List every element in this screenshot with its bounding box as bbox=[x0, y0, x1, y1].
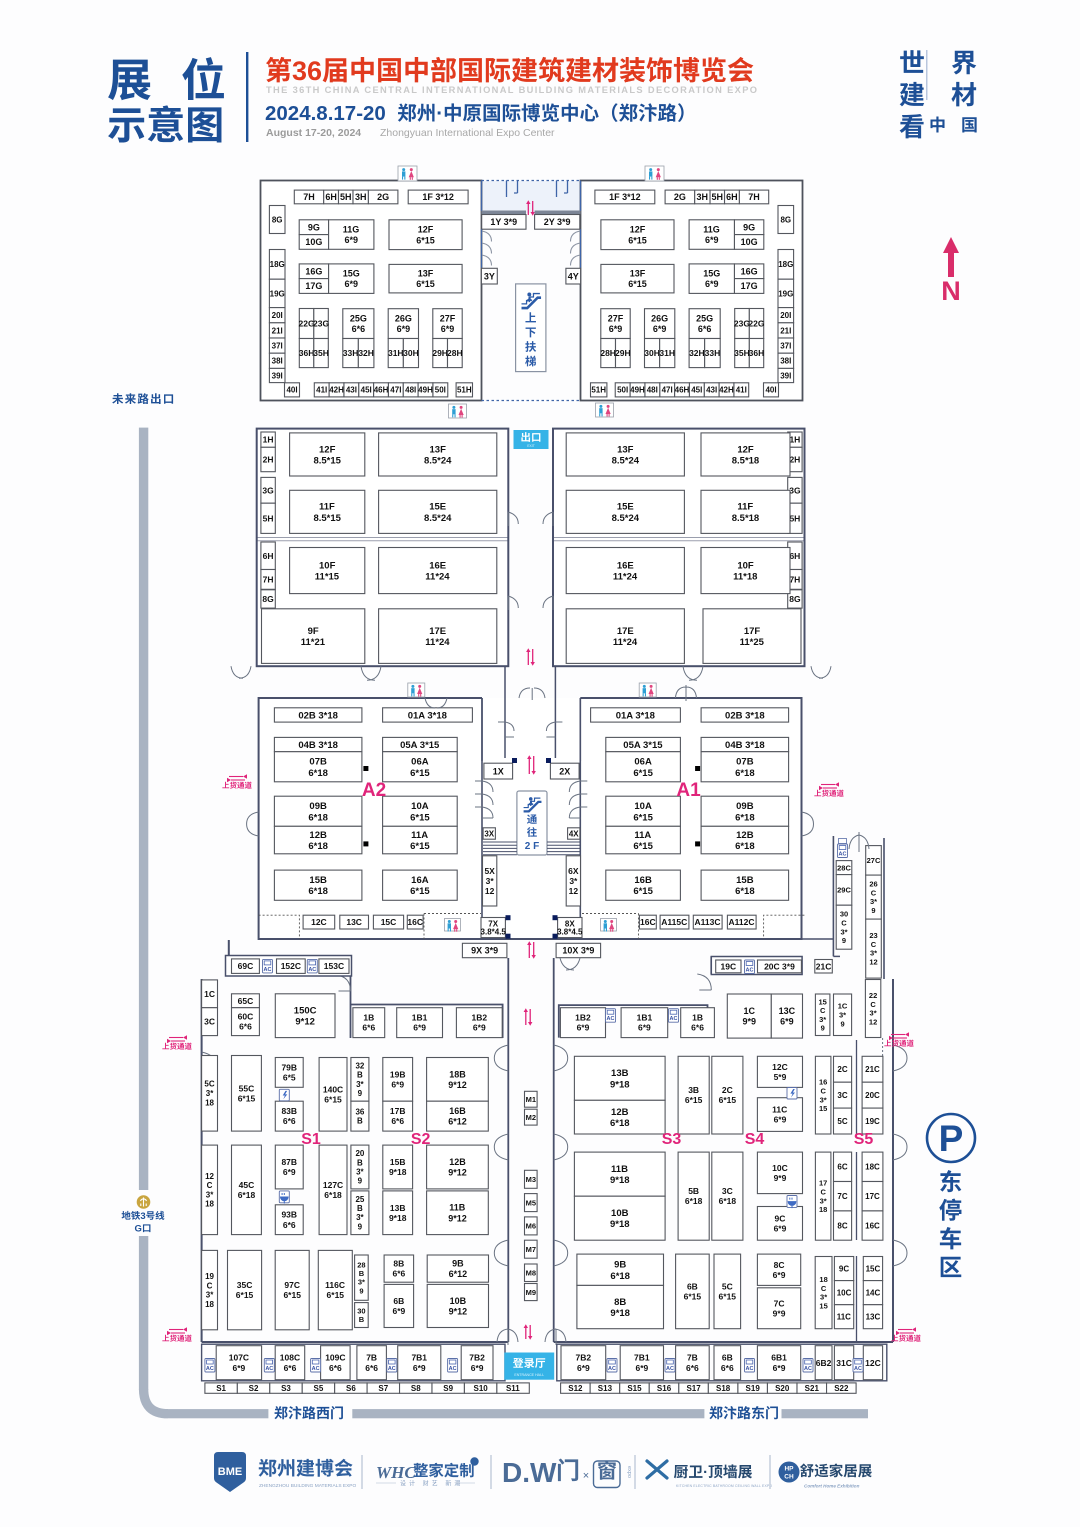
svg-text:9*18: 9*18 bbox=[610, 1219, 630, 1230]
svg-text:17E: 17E bbox=[617, 626, 634, 637]
svg-text:43I: 43I bbox=[706, 386, 717, 395]
svg-text:11F: 11F bbox=[737, 502, 753, 513]
svg-text:8B: 8B bbox=[393, 1259, 404, 1269]
svg-text:9B: 9B bbox=[614, 1260, 626, 1271]
svg-text:16A: 16A bbox=[411, 875, 429, 886]
svg-text:9*9: 9*9 bbox=[774, 1173, 787, 1183]
svg-text:13F: 13F bbox=[630, 269, 646, 279]
svg-text:AC: AC bbox=[264, 967, 272, 973]
svg-text:50I: 50I bbox=[435, 386, 446, 395]
svg-text:3.8*4.5: 3.8*4.5 bbox=[481, 927, 507, 936]
svg-text:6*18: 6*18 bbox=[308, 812, 328, 823]
svg-text:15E: 15E bbox=[429, 502, 446, 513]
svg-text:A1: A1 bbox=[676, 780, 701, 801]
svg-text:28H: 28H bbox=[600, 348, 616, 358]
svg-text:6*12: 6*12 bbox=[448, 1117, 467, 1127]
svg-text:36H: 36H bbox=[299, 348, 315, 358]
svg-text:C: C bbox=[841, 919, 847, 928]
svg-text:7B1: 7B1 bbox=[411, 1353, 427, 1363]
svg-text:20I: 20I bbox=[780, 311, 791, 320]
svg-text:10X 3*9: 10X 3*9 bbox=[562, 946, 594, 956]
svg-text:29H: 29H bbox=[432, 348, 448, 358]
svg-text:6*9: 6*9 bbox=[413, 1023, 426, 1033]
svg-text:19: 19 bbox=[205, 1272, 214, 1281]
svg-text:D.W: D.W bbox=[502, 1457, 557, 1488]
svg-text:15C: 15C bbox=[866, 1264, 881, 1273]
svg-text:S2: S2 bbox=[411, 1131, 431, 1148]
svg-text:6*15: 6*15 bbox=[324, 1094, 342, 1104]
svg-text:2 F: 2 F bbox=[525, 841, 539, 852]
svg-text:6*9: 6*9 bbox=[344, 235, 358, 245]
svg-text:6*18: 6*18 bbox=[610, 1271, 630, 1282]
svg-text:G: G bbox=[135, 1224, 142, 1235]
svg-text:3*: 3* bbox=[206, 1089, 214, 1098]
svg-text:1F 3*12: 1F 3*12 bbox=[422, 192, 454, 202]
svg-text:13F: 13F bbox=[418, 269, 434, 279]
svg-text:2024.8.17-20: 2024.8.17-20 bbox=[265, 102, 386, 125]
svg-text:12: 12 bbox=[869, 1017, 877, 1026]
svg-text:S1: S1 bbox=[301, 1131, 321, 1148]
svg-text:17C: 17C bbox=[865, 1192, 880, 1201]
svg-text:9G: 9G bbox=[743, 222, 755, 232]
svg-text:13B: 13B bbox=[390, 1203, 406, 1213]
svg-text:6*15: 6*15 bbox=[628, 235, 647, 245]
svg-text:11A: 11A bbox=[411, 830, 428, 841]
svg-text:6*6: 6*6 bbox=[698, 324, 712, 334]
svg-text:9*12: 9*12 bbox=[448, 1080, 467, 1090]
svg-text:35H: 35H bbox=[734, 348, 750, 358]
svg-text:6B: 6B bbox=[722, 1353, 733, 1363]
svg-text:1B: 1B bbox=[692, 1013, 703, 1023]
svg-text:1C: 1C bbox=[204, 989, 215, 999]
svg-text:9*9: 9*9 bbox=[743, 1017, 757, 1027]
svg-text:5H: 5H bbox=[711, 192, 723, 202]
svg-text:36: 36 bbox=[292, 56, 322, 86]
svg-text:C: C bbox=[821, 1284, 827, 1293]
svg-text:6*18: 6*18 bbox=[610, 1118, 630, 1129]
svg-text:21C: 21C bbox=[816, 961, 832, 971]
svg-text:26: 26 bbox=[869, 880, 877, 889]
svg-text:16E: 16E bbox=[429, 560, 446, 571]
svg-text:40I: 40I bbox=[286, 386, 297, 395]
svg-text:7B: 7B bbox=[687, 1353, 698, 1363]
svg-text:25G: 25G bbox=[696, 314, 713, 324]
svg-text:18: 18 bbox=[205, 1300, 214, 1309]
svg-text:6*15: 6*15 bbox=[633, 841, 653, 852]
svg-text:9: 9 bbox=[358, 1222, 363, 1231]
svg-text:45I: 45I bbox=[361, 386, 372, 395]
svg-text:S5: S5 bbox=[854, 1131, 874, 1148]
svg-text:10C: 10C bbox=[772, 1163, 788, 1173]
svg-text:6*9: 6*9 bbox=[609, 324, 623, 334]
svg-text:3*: 3* bbox=[569, 876, 578, 886]
svg-text:9C: 9C bbox=[775, 1213, 786, 1223]
svg-text:8.5*24: 8.5*24 bbox=[424, 455, 452, 466]
svg-text:8.5*24: 8.5*24 bbox=[424, 513, 452, 524]
svg-text:1B: 1B bbox=[363, 1013, 374, 1023]
svg-text:49H: 49H bbox=[418, 386, 433, 395]
svg-text:36H: 36H bbox=[749, 348, 765, 358]
svg-text:7H: 7H bbox=[263, 574, 274, 584]
svg-text:15C: 15C bbox=[381, 917, 397, 927]
svg-text:21I: 21I bbox=[780, 326, 791, 335]
svg-text:3*: 3* bbox=[839, 1010, 846, 1019]
svg-text:33H: 33H bbox=[705, 348, 721, 358]
svg-text:6H: 6H bbox=[325, 192, 337, 202]
svg-text:40I: 40I bbox=[765, 386, 776, 395]
svg-text:15B: 15B bbox=[390, 1157, 406, 1167]
svg-text:4Y: 4Y bbox=[568, 271, 579, 281]
svg-text:07B: 07B bbox=[309, 757, 327, 768]
svg-text:C: C bbox=[820, 1187, 826, 1196]
svg-text:11*25: 11*25 bbox=[740, 637, 765, 648]
svg-text:2Y 3*9: 2Y 3*9 bbox=[544, 217, 571, 227]
svg-text:AC: AC bbox=[854, 1366, 862, 1372]
svg-text:07B: 07B bbox=[736, 757, 754, 768]
svg-text:05A 3*15: 05A 3*15 bbox=[400, 740, 440, 751]
svg-text:HP: HP bbox=[784, 1466, 794, 1473]
svg-text:30: 30 bbox=[840, 910, 848, 919]
svg-text:6*5: 6*5 bbox=[283, 1072, 296, 1082]
svg-text:6*15: 6*15 bbox=[633, 812, 653, 823]
svg-text:12B: 12B bbox=[309, 830, 327, 841]
svg-text:36: 36 bbox=[355, 1107, 364, 1116]
svg-text:12F: 12F bbox=[418, 225, 434, 235]
svg-text:8.5*15: 8.5*15 bbox=[313, 513, 341, 524]
svg-text:S3: S3 bbox=[281, 1384, 291, 1393]
svg-text:7B: 7B bbox=[366, 1353, 377, 1363]
svg-text:3*: 3* bbox=[870, 949, 877, 958]
svg-text:6*9: 6*9 bbox=[705, 279, 719, 289]
svg-text:6B: 6B bbox=[687, 1281, 698, 1291]
svg-text:32H: 32H bbox=[689, 348, 705, 358]
svg-text:127C: 127C bbox=[323, 1180, 343, 1190]
svg-text:6*15: 6*15 bbox=[410, 768, 430, 779]
svg-text:6*9: 6*9 bbox=[774, 1223, 787, 1233]
svg-text:60C: 60C bbox=[238, 1012, 254, 1022]
svg-text:S21: S21 bbox=[805, 1384, 820, 1393]
svg-text:19G: 19G bbox=[270, 289, 285, 298]
svg-text:42H: 42H bbox=[719, 386, 734, 395]
svg-text:设计 财艺 新潮: 设计 财艺 新潮 bbox=[400, 1480, 463, 1488]
svg-text:S16: S16 bbox=[657, 1384, 672, 1393]
svg-text:16C: 16C bbox=[640, 917, 656, 927]
svg-text:12F: 12F bbox=[630, 225, 646, 235]
svg-text:6*9: 6*9 bbox=[705, 235, 719, 245]
svg-text:6*6: 6*6 bbox=[365, 1363, 378, 1373]
svg-text:50I: 50I bbox=[617, 386, 628, 395]
svg-text:18C: 18C bbox=[865, 1163, 880, 1172]
svg-text:2X: 2X bbox=[559, 766, 570, 776]
svg-text:11F: 11F bbox=[319, 502, 335, 513]
svg-text:6*9: 6*9 bbox=[391, 1079, 404, 1089]
svg-text:41I: 41I bbox=[736, 386, 747, 395]
svg-text:12B: 12B bbox=[736, 830, 754, 841]
svg-text:19C: 19C bbox=[721, 961, 737, 971]
svg-text:16C: 16C bbox=[865, 1221, 880, 1230]
svg-text:21I: 21I bbox=[272, 326, 283, 335]
svg-text:9: 9 bbox=[821, 1024, 825, 1033]
svg-text:11*21: 11*21 bbox=[301, 637, 326, 648]
svg-text:S19: S19 bbox=[746, 1384, 761, 1393]
svg-text:11*24: 11*24 bbox=[425, 572, 450, 583]
svg-text:109C: 109C bbox=[325, 1353, 345, 1363]
svg-text:6*9: 6*9 bbox=[780, 1017, 794, 1027]
svg-text:6B1: 6B1 bbox=[771, 1353, 787, 1363]
svg-text:AC: AC bbox=[308, 967, 316, 973]
svg-text:3B: 3B bbox=[688, 1085, 699, 1095]
svg-text:6B: 6B bbox=[393, 1296, 404, 1306]
svg-text:6*15: 6*15 bbox=[719, 1291, 737, 1301]
svg-text:140C: 140C bbox=[323, 1084, 343, 1094]
svg-text:S20: S20 bbox=[775, 1384, 790, 1393]
svg-text:4X: 4X bbox=[569, 829, 579, 838]
svg-text:1B1: 1B1 bbox=[637, 1013, 653, 1023]
svg-text:6*15: 6*15 bbox=[719, 1095, 737, 1105]
svg-text:9*12: 9*12 bbox=[449, 1307, 468, 1317]
svg-text:16E: 16E bbox=[617, 560, 634, 571]
svg-text:18: 18 bbox=[819, 1275, 827, 1284]
svg-text:15G: 15G bbox=[703, 269, 720, 279]
svg-text:32H: 32H bbox=[358, 348, 374, 358]
svg-text:3*: 3* bbox=[206, 1291, 214, 1300]
svg-text:14C: 14C bbox=[866, 1289, 881, 1298]
svg-text:20C 3*9: 20C 3*9 bbox=[764, 961, 795, 971]
svg-text:47I: 47I bbox=[662, 386, 673, 395]
svg-text:A115C: A115C bbox=[661, 917, 687, 927]
svg-text:11A: 11A bbox=[634, 830, 651, 841]
svg-text:7C: 7C bbox=[837, 1192, 847, 1201]
svg-text:69C: 69C bbox=[238, 961, 254, 971]
svg-text:16G: 16G bbox=[305, 266, 322, 276]
svg-text:7C: 7C bbox=[774, 1298, 785, 1308]
svg-text:28H: 28H bbox=[447, 348, 463, 358]
svg-text:19G: 19G bbox=[778, 289, 793, 298]
svg-text:6*6: 6*6 bbox=[362, 1023, 375, 1033]
svg-text:5B: 5B bbox=[688, 1186, 699, 1196]
svg-text:6*18: 6*18 bbox=[308, 841, 328, 852]
svg-text:S4: S4 bbox=[745, 1131, 765, 1148]
svg-text:S18: S18 bbox=[716, 1384, 731, 1393]
svg-text:6*6: 6*6 bbox=[721, 1363, 734, 1373]
svg-text:C: C bbox=[870, 1000, 876, 1009]
svg-text:6*9: 6*9 bbox=[344, 279, 358, 289]
svg-text:S13: S13 bbox=[598, 1384, 613, 1393]
svg-text:ZHENGZHOU BUILDING MATERIALS E: ZHENGZHOU BUILDING MATERIALS EXPO bbox=[259, 1483, 356, 1489]
svg-text:9*18: 9*18 bbox=[389, 1167, 407, 1177]
svg-text:2C: 2C bbox=[837, 1065, 847, 1074]
svg-text:6*9: 6*9 bbox=[773, 1363, 786, 1373]
svg-text:18: 18 bbox=[205, 1200, 214, 1209]
svg-text:6*6: 6*6 bbox=[283, 1116, 296, 1126]
svg-text:04B 3*18: 04B 3*18 bbox=[725, 740, 765, 751]
svg-text:13C: 13C bbox=[866, 1313, 881, 1322]
svg-text:8.5*24: 8.5*24 bbox=[612, 455, 640, 466]
svg-text:97C: 97C bbox=[284, 1280, 300, 1290]
svg-text:108C: 108C bbox=[280, 1353, 300, 1363]
svg-text:9: 9 bbox=[842, 936, 846, 945]
svg-text:30H: 30H bbox=[644, 348, 660, 358]
svg-text:11C: 11C bbox=[837, 1313, 851, 1322]
svg-text:8.5*18: 8.5*18 bbox=[732, 455, 759, 466]
svg-text:48I: 48I bbox=[405, 386, 416, 395]
svg-text:P: P bbox=[939, 1118, 964, 1159]
svg-text:M8: M8 bbox=[526, 1268, 536, 1277]
svg-text:AC: AC bbox=[670, 1016, 678, 1022]
svg-text:3: 3 bbox=[140, 1211, 145, 1222]
svg-text:3*: 3* bbox=[356, 1080, 364, 1089]
svg-text:11C: 11C bbox=[772, 1105, 787, 1115]
svg-text:01A 3*18: 01A 3*18 bbox=[616, 710, 655, 721]
svg-text:M7: M7 bbox=[526, 1245, 536, 1254]
svg-text:6*9: 6*9 bbox=[638, 1023, 651, 1033]
svg-text:29C: 29C bbox=[837, 886, 851, 895]
svg-text:5C: 5C bbox=[837, 1117, 847, 1126]
svg-text:16B: 16B bbox=[634, 875, 652, 886]
svg-text:16: 16 bbox=[819, 1078, 827, 1087]
svg-text:17B: 17B bbox=[390, 1106, 406, 1116]
svg-text:M9: M9 bbox=[526, 1288, 536, 1297]
svg-text:41I: 41I bbox=[316, 386, 327, 395]
svg-text:9*12: 9*12 bbox=[295, 1017, 315, 1028]
svg-text:9: 9 bbox=[840, 1019, 844, 1028]
svg-text:6*18: 6*18 bbox=[735, 886, 755, 897]
svg-text:21C: 21C bbox=[865, 1065, 880, 1074]
svg-text:18: 18 bbox=[205, 1099, 214, 1108]
svg-text:3*: 3* bbox=[820, 1293, 827, 1302]
svg-text:M6: M6 bbox=[526, 1222, 536, 1231]
svg-text:3*: 3* bbox=[820, 1095, 827, 1104]
svg-text:3*: 3* bbox=[206, 1190, 214, 1199]
svg-text:45I: 45I bbox=[691, 386, 702, 395]
svg-text:WHC: WHC bbox=[376, 1463, 416, 1482]
svg-text:AC: AC bbox=[608, 1366, 616, 1372]
svg-text:9F: 9F bbox=[308, 626, 319, 637]
svg-text:M2: M2 bbox=[526, 1113, 536, 1122]
svg-text:3*: 3* bbox=[486, 876, 495, 886]
svg-text:10G: 10G bbox=[741, 237, 758, 247]
svg-text:9G: 9G bbox=[308, 222, 320, 232]
svg-text:S1: S1 bbox=[216, 1384, 226, 1393]
svg-text:3*: 3* bbox=[356, 1167, 364, 1176]
svg-text:9*9: 9*9 bbox=[773, 1308, 786, 1318]
svg-text:10B: 10B bbox=[450, 1296, 467, 1306]
svg-text:11*24: 11*24 bbox=[613, 637, 638, 648]
svg-text:30H: 30H bbox=[403, 348, 419, 358]
svg-text:15E: 15E bbox=[617, 502, 634, 513]
svg-text:6*9: 6*9 bbox=[473, 1023, 486, 1033]
svg-text:18B: 18B bbox=[449, 1069, 466, 1079]
svg-text:9*18: 9*18 bbox=[389, 1213, 407, 1223]
svg-text:17E: 17E bbox=[429, 626, 446, 637]
svg-text:35H: 35H bbox=[313, 348, 329, 358]
svg-text:BME: BME bbox=[218, 1466, 242, 1478]
svg-text:6*9: 6*9 bbox=[233, 1363, 246, 1373]
svg-text:·: · bbox=[436, 102, 443, 125]
svg-text:79B: 79B bbox=[281, 1062, 297, 1072]
svg-text:6*9: 6*9 bbox=[577, 1023, 590, 1033]
svg-text:87B: 87B bbox=[281, 1157, 297, 1167]
svg-text:10A: 10A bbox=[634, 801, 652, 812]
svg-text:1F 3*12: 1F 3*12 bbox=[609, 192, 641, 202]
svg-text:9X 3*9: 9X 3*9 bbox=[471, 946, 498, 956]
svg-text:22: 22 bbox=[869, 991, 877, 1000]
svg-text:37I: 37I bbox=[272, 341, 283, 350]
svg-text:THE 36TH CHINA CENTRAL INTERNA: THE 36TH CHINA CENTRAL INTERNATIONAL BUI… bbox=[266, 85, 758, 95]
svg-text:S8: S8 bbox=[411, 1384, 421, 1393]
svg-text:12C: 12C bbox=[311, 917, 327, 927]
svg-text:3*: 3* bbox=[840, 927, 847, 936]
svg-text:18G: 18G bbox=[778, 260, 793, 269]
svg-text:1H: 1H bbox=[789, 435, 800, 445]
svg-text:01A 3*18: 01A 3*18 bbox=[408, 710, 447, 721]
svg-text:A113C: A113C bbox=[694, 917, 720, 927]
svg-text:B: B bbox=[357, 1117, 363, 1126]
svg-text:3C: 3C bbox=[837, 1091, 847, 1100]
svg-text:3.8*4.5: 3.8*4.5 bbox=[557, 927, 583, 936]
svg-text:6*15: 6*15 bbox=[410, 886, 430, 897]
svg-text:6*18: 6*18 bbox=[719, 1196, 737, 1206]
svg-text:20C: 20C bbox=[865, 1091, 880, 1100]
svg-text:7H: 7H bbox=[303, 192, 315, 202]
svg-text:10C: 10C bbox=[837, 1289, 852, 1298]
svg-text:107C: 107C bbox=[229, 1353, 249, 1363]
svg-text:45C: 45C bbox=[239, 1180, 255, 1190]
svg-text:6*18: 6*18 bbox=[735, 812, 755, 823]
svg-text:6*15: 6*15 bbox=[327, 1290, 345, 1300]
svg-text:C: C bbox=[207, 1281, 213, 1290]
svg-text:S5: S5 bbox=[314, 1384, 324, 1393]
svg-text:6*15: 6*15 bbox=[684, 1291, 702, 1301]
svg-text:16B: 16B bbox=[449, 1106, 466, 1116]
svg-text:25G: 25G bbox=[350, 314, 367, 324]
svg-text:S15: S15 bbox=[627, 1384, 642, 1393]
svg-text:August 17-20, 2024: August 17-20, 2024 bbox=[266, 127, 361, 139]
svg-text:·: · bbox=[703, 1465, 708, 1481]
svg-text:6*15: 6*15 bbox=[410, 812, 430, 823]
svg-text:6*9: 6*9 bbox=[471, 1363, 484, 1373]
svg-text:9C: 9C bbox=[839, 1264, 849, 1273]
svg-text:6*9: 6*9 bbox=[774, 1115, 787, 1125]
svg-text:3*: 3* bbox=[870, 1009, 877, 1018]
svg-text:CH: CH bbox=[784, 1474, 794, 1481]
svg-text:10F: 10F bbox=[737, 560, 754, 571]
svg-text:47I: 47I bbox=[390, 386, 401, 395]
svg-text:2G: 2G bbox=[377, 192, 389, 202]
svg-text:15: 15 bbox=[819, 1302, 827, 1311]
svg-text:11B: 11B bbox=[611, 1164, 628, 1175]
svg-text:18G: 18G bbox=[270, 260, 285, 269]
svg-text:8C: 8C bbox=[837, 1221, 847, 1230]
svg-text:2H: 2H bbox=[263, 455, 274, 465]
svg-text:9B: 9B bbox=[452, 1259, 464, 1269]
svg-text:33H: 33H bbox=[343, 348, 359, 358]
svg-text:6*18: 6*18 bbox=[308, 768, 328, 779]
svg-text:AC: AC bbox=[312, 1366, 320, 1372]
svg-text:06A: 06A bbox=[634, 757, 652, 768]
svg-text:16C: 16C bbox=[407, 917, 423, 927]
svg-text:29H: 29H bbox=[615, 348, 631, 358]
svg-text:AC: AC bbox=[746, 968, 754, 974]
svg-text:5H: 5H bbox=[263, 513, 274, 523]
svg-text:AC: AC bbox=[206, 1366, 214, 1372]
svg-text:1B2: 1B2 bbox=[472, 1013, 488, 1023]
svg-text:6*15: 6*15 bbox=[238, 1093, 256, 1103]
svg-text:8.5*18: 8.5*18 bbox=[732, 513, 759, 524]
svg-text:12B: 12B bbox=[449, 1157, 466, 1167]
svg-text:AC: AC bbox=[804, 1366, 812, 1372]
svg-text:1B1: 1B1 bbox=[412, 1013, 428, 1023]
